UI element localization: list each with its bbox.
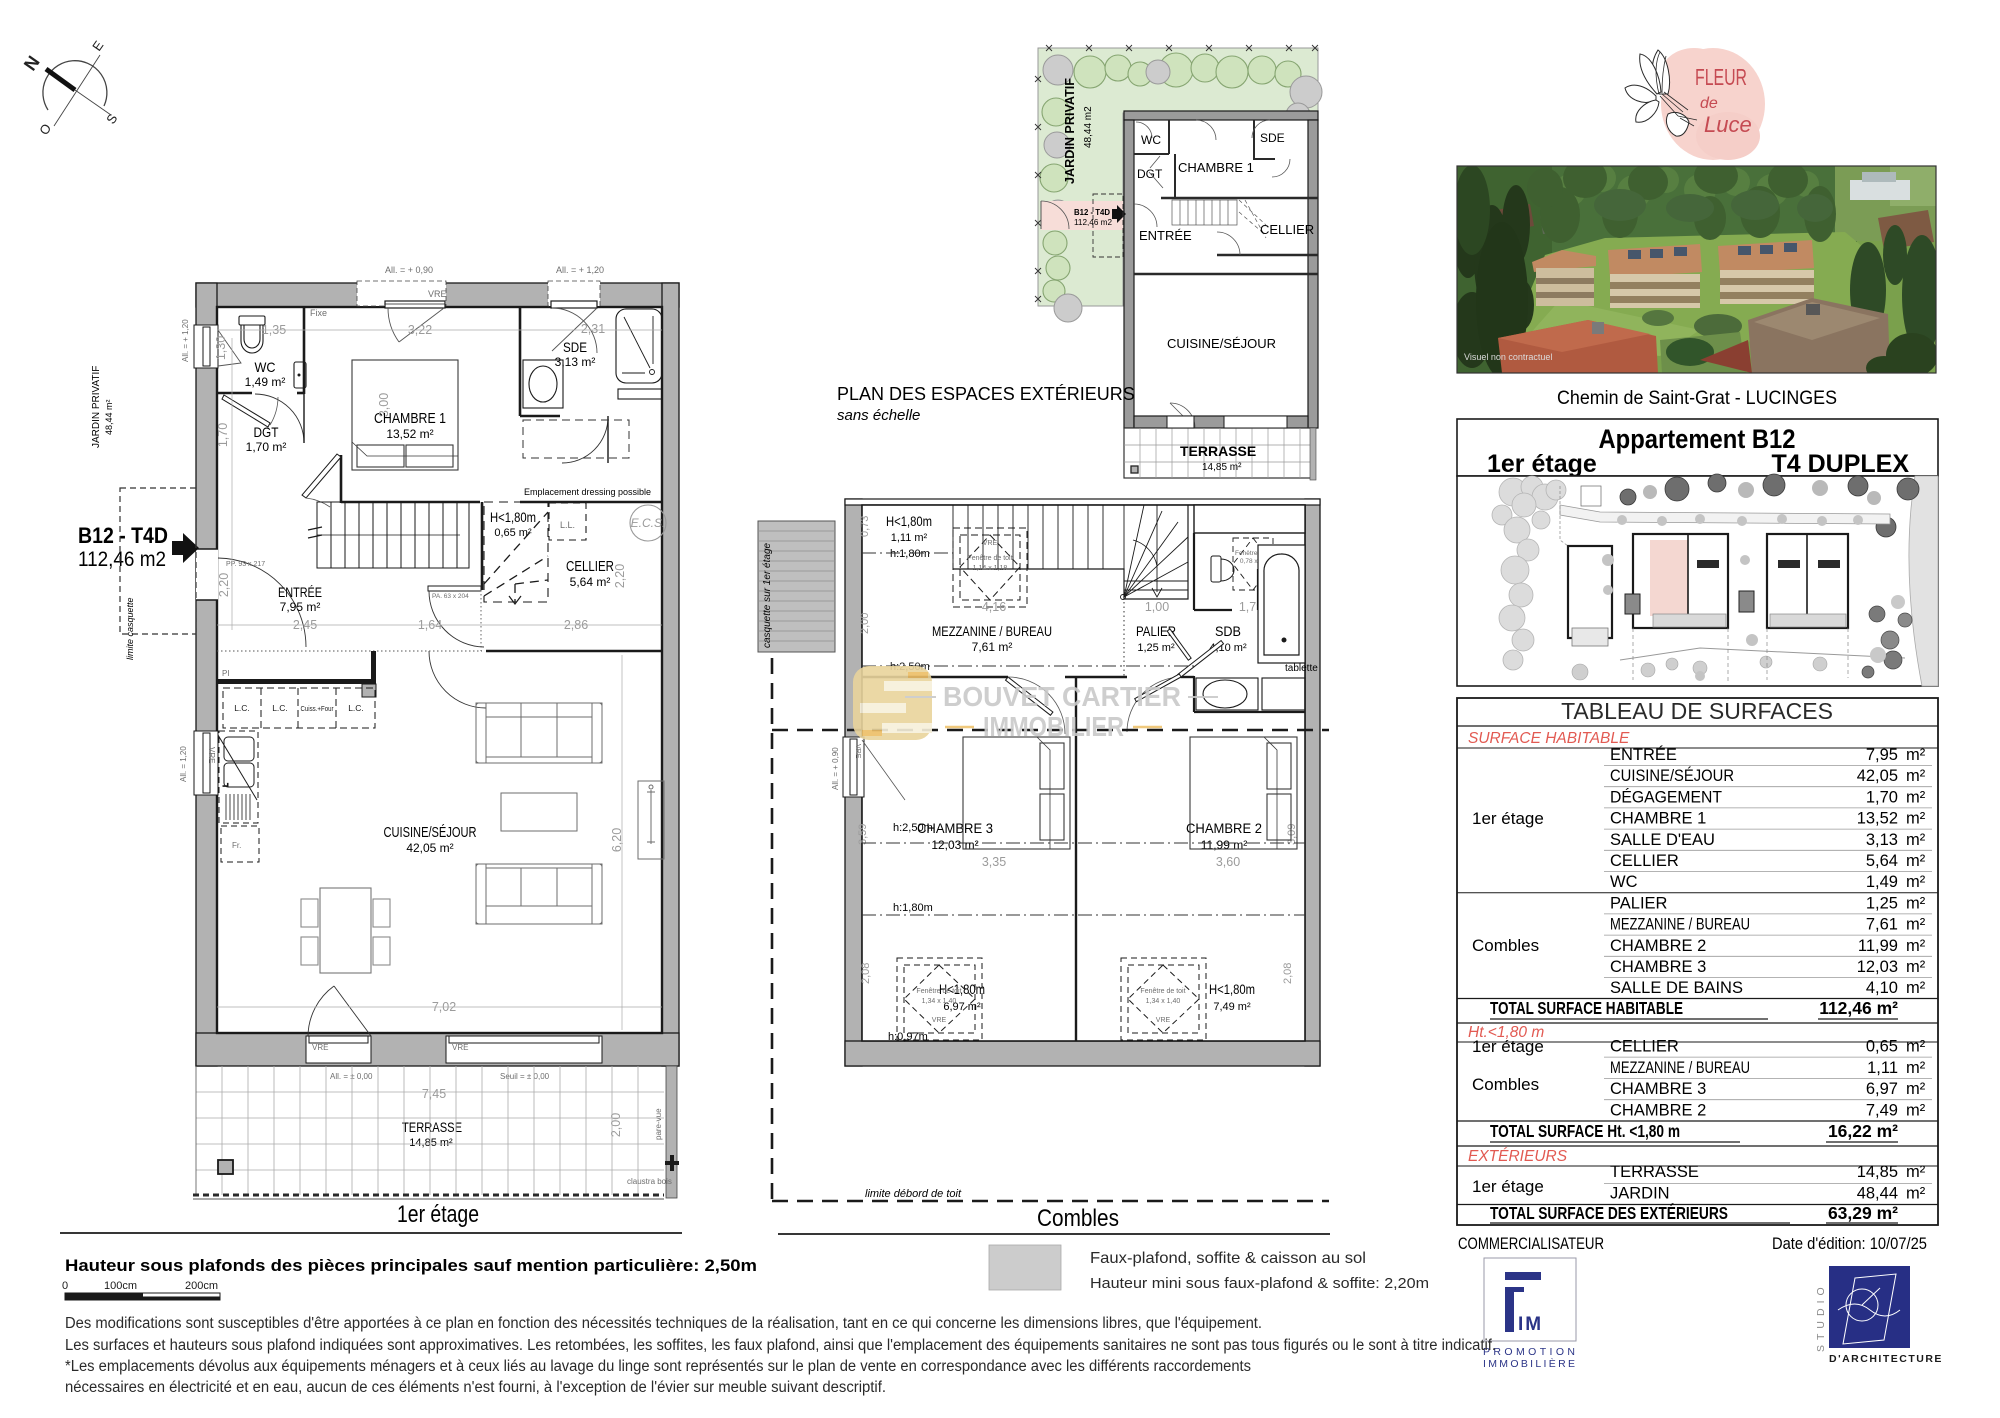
svg-text:DÉGAGEMENT: DÉGAGEMENT — [1610, 787, 1722, 806]
svg-text:Combles: Combles — [1037, 1205, 1119, 1232]
svg-text:h:1,80m: h:1,80m — [890, 548, 930, 560]
svg-text:Hauteur mini sous faux-plafond: Hauteur mini sous faux-plafond & soffite… — [1090, 1275, 1429, 1292]
svg-text:12,03: 12,03 — [1857, 958, 1898, 976]
svg-text:3,59: 3,59 — [857, 824, 869, 845]
svg-text:L.C.: L.C. — [234, 703, 250, 713]
svg-text:2,31: 2,31 — [581, 322, 605, 336]
svg-text:1,70 m²: 1,70 m² — [246, 440, 287, 454]
svg-text:CELLIER: CELLIER — [566, 558, 614, 575]
svg-text:TOTAL SURFACE Ht. <1,80 m: TOTAL SURFACE Ht. <1,80 m — [1490, 1121, 1680, 1141]
svg-text:claustra bois: claustra bois — [627, 1177, 672, 1186]
svg-text:CELLIER: CELLIER — [1610, 852, 1679, 870]
svg-text:5,64: 5,64 — [1866, 852, 1898, 870]
svg-text:CHAMBRE 1: CHAMBRE 1 — [1610, 810, 1706, 828]
svg-text:1er étage: 1er étage — [397, 1201, 479, 1228]
svg-text:H<1,80m: H<1,80m — [490, 510, 536, 525]
svg-text:limite casquette: limite casquette — [125, 597, 135, 660]
svg-text:m²: m² — [1906, 1185, 1926, 1203]
svg-text:CHAMBRE 3: CHAMBRE 3 — [1610, 958, 1706, 976]
svg-text:2,20: 2,20 — [217, 573, 231, 597]
svg-text:CUISINE/SÉJOUR: CUISINE/SÉJOUR — [1167, 336, 1276, 351]
svg-text:1,00: 1,00 — [1145, 600, 1169, 614]
svg-text:7,49 m²: 7,49 m² — [1213, 1001, 1251, 1013]
svg-text:7,61: 7,61 — [1866, 916, 1898, 934]
svg-text:SDE: SDE — [1260, 131, 1285, 145]
svg-text:1,11 m²: 1,11 m² — [891, 532, 928, 544]
svg-text:WC: WC — [1141, 133, 1161, 147]
svg-text:13,52: 13,52 — [1857, 810, 1898, 828]
svg-text:Appartement B12: Appartement B12 — [1599, 424, 1796, 454]
svg-text:DGT: DGT — [1137, 167, 1163, 181]
svg-text:FLEUR: FLEUR — [1695, 64, 1747, 90]
svg-text:D'ARCHITECTURE: D'ARCHITECTURE — [1829, 1353, 1943, 1365]
svg-text:CHAMBRE 1: CHAMBRE 1 — [1178, 160, 1254, 175]
svg-text:VRE: VRE — [428, 289, 447, 299]
svg-text:nécessaires en électricité et: nécessaires en électricité et en eau, au… — [65, 1379, 886, 1396]
svg-text:14,85 m²: 14,85 m² — [1202, 462, 1242, 473]
svg-text:1er étage: 1er étage — [1472, 1037, 1544, 1056]
svg-text:h:1,80m: h:1,80m — [893, 902, 933, 914]
svg-text:B12 - T4D: B12 - T4D — [78, 523, 168, 548]
svg-text:All. = + 1,20: All. = + 1,20 — [181, 319, 190, 362]
svg-text:Visuel non contractuel: Visuel non contractuel — [1464, 352, 1552, 362]
svg-text:VRE: VRE — [207, 747, 216, 763]
svg-text:m²: m² — [1906, 1102, 1926, 1120]
svg-text:T4 DUPLEX: T4 DUPLEX — [1771, 450, 1909, 478]
svg-text:SDB: SDB — [1215, 623, 1241, 639]
svg-text:Les surfaces et hauteurs sous: Les surfaces et hauteurs sous plafond in… — [65, 1337, 1496, 1354]
svg-text:sans échelle: sans échelle — [837, 407, 920, 424]
svg-text:Hauteur sous plafonds des pièc: Hauteur sous plafonds des pièces princip… — [65, 1256, 757, 1275]
svg-text:de: de — [1700, 95, 1718, 112]
svg-text:ENTRÉE: ENTRÉE — [278, 584, 322, 600]
svg-text:Cuiss.+Four: Cuiss.+Four — [301, 704, 334, 713]
svg-text:CUISINE/SÉJOUR: CUISINE/SÉJOUR — [384, 824, 477, 841]
svg-text:ENTRÉE: ENTRÉE — [1139, 228, 1192, 243]
svg-text:MEZZANINE / BUREAU: MEZZANINE / BUREAU — [1610, 1059, 1750, 1077]
svg-text:2,00: 2,00 — [609, 1113, 623, 1137]
svg-text:1,25 m²: 1,25 m² — [1137, 642, 1175, 654]
svg-text:casquette sur 1er étage: casquette sur 1er étage — [762, 542, 773, 648]
svg-text:7,45: 7,45 — [422, 1087, 446, 1101]
svg-text:VRE: VRE — [932, 1017, 947, 1024]
svg-text:2,00: 2,00 — [859, 613, 871, 634]
svg-text:Fenêtre de toit: Fenêtre de toit — [916, 988, 961, 995]
svg-text:3,13 m²: 3,13 m² — [555, 355, 596, 369]
svg-text:VRE: VRE — [983, 540, 998, 547]
svg-text:m²: m² — [1906, 1080, 1926, 1098]
svg-text:m²: m² — [1906, 1059, 1926, 1077]
svg-text:1,11: 1,11 — [1867, 1059, 1898, 1077]
svg-text:H<1,80m: H<1,80m — [886, 514, 932, 529]
svg-text:B12 - T4D: B12 - T4D — [1074, 207, 1110, 217]
svg-text:m²: m² — [1906, 767, 1926, 785]
svg-text:TABLEAU DE SURFACES: TABLEAU DE SURFACES — [1561, 698, 1833, 724]
svg-text:Seuil = ± 0,00: Seuil = ± 0,00 — [500, 1072, 550, 1081]
svg-text:CHAMBRE 2: CHAMBRE 2 — [1610, 937, 1706, 955]
svg-text:WC: WC — [1610, 873, 1638, 891]
svg-text:Chemin de Saint-Grat - LUCINGE: Chemin de Saint-Grat - LUCINGES — [1557, 388, 1837, 409]
svg-text:*Les emplacements dévolus aux: *Les emplacements dévolus aux équipement… — [65, 1358, 1251, 1375]
svg-text:14,85 m²: 14,85 m² — [409, 1137, 453, 1149]
svg-text:JARDIN PRIVATIF: JARDIN PRIVATIF — [1062, 78, 1077, 184]
svg-text:Combles: Combles — [1472, 1075, 1539, 1094]
svg-text:3,35: 3,35 — [982, 855, 1006, 869]
svg-text:Combles: Combles — [1472, 936, 1539, 955]
svg-text:1er étage: 1er étage — [1472, 809, 1544, 828]
svg-text:m²: m² — [1906, 979, 1926, 997]
svg-text:VRE: VRE — [452, 1043, 468, 1052]
svg-text:MEZZANINE / BUREAU: MEZZANINE / BUREAU — [932, 623, 1052, 639]
svg-text:IM: IM — [1518, 1314, 1543, 1335]
svg-text:Date d'édition: 10/07/25: Date d'édition: 10/07/25 — [1772, 1234, 1927, 1253]
svg-text:1,49 m²: 1,49 m² — [245, 375, 286, 389]
svg-text:MEZZANINE / BUREAU: MEZZANINE / BUREAU — [1610, 916, 1750, 934]
svg-text:63,29 m²: 63,29 m² — [1828, 1203, 1898, 1223]
svg-text:Fenêtre de toit: Fenêtre de toit — [967, 555, 1012, 562]
svg-text:14,85: 14,85 — [1857, 1163, 1898, 1181]
svg-text:3,09: 3,09 — [1286, 824, 1298, 845]
svg-text:m²: m² — [1906, 746, 1926, 764]
svg-text:VRE: VRE — [312, 1043, 328, 1052]
svg-text:IMMOBILIER: IMMOBILIER — [983, 711, 1124, 742]
svg-text:TOTAL SURFACE DES EXTÉRIEURS: TOTAL SURFACE DES EXTÉRIEURS — [1490, 1202, 1728, 1223]
svg-text:3,00: 3,00 — [377, 393, 391, 417]
svg-text:11,99 m²: 11,99 m² — [1201, 838, 1247, 852]
svg-text:m²: m² — [1906, 788, 1926, 806]
svg-text:Faux-plafond, soffite & caisso: Faux-plafond, soffite & caisson au sol — [1090, 1250, 1366, 1267]
svg-text:112,46 m2: 112,46 m2 — [78, 548, 166, 571]
svg-text:All. = + 0,90: All. = + 0,90 — [385, 265, 433, 275]
svg-text:42,05: 42,05 — [1857, 767, 1898, 785]
svg-text:7,95 m²: 7,95 m² — [280, 600, 321, 614]
svg-text:All. = + 0,90: All. = + 0,90 — [831, 747, 840, 790]
svg-text:COMMERCIALISATEUR: COMMERCIALISATEUR — [1458, 1234, 1604, 1253]
svg-text:TERRASSE: TERRASSE — [1610, 1163, 1699, 1181]
svg-text:Des modifications sont suscept: Des modifications sont susceptibles d'êt… — [65, 1315, 1262, 1332]
svg-text:48,44: 48,44 — [1857, 1185, 1898, 1203]
svg-text:42,05 m²: 42,05 m² — [406, 841, 453, 855]
svg-text:BOUVET CARTIER: BOUVET CARTIER — [943, 681, 1181, 712]
svg-text:16,22 m²: 16,22 m² — [1828, 1121, 1898, 1141]
svg-text:m²: m² — [1906, 810, 1926, 828]
svg-text:7,95: 7,95 — [1866, 746, 1898, 764]
svg-text:11,99: 11,99 — [1858, 937, 1898, 955]
svg-text:48,44 m²: 48,44 m² — [104, 399, 114, 435]
svg-text:CHAMBRE 2: CHAMBRE 2 — [1186, 820, 1262, 836]
svg-text:All. = ± 0,00: All. = ± 0,00 — [330, 1072, 373, 1081]
svg-text:Fenêtre de toit: Fenêtre de toit — [1140, 988, 1185, 995]
svg-text:m²: m² — [1906, 894, 1926, 912]
svg-text:112,46 m²: 112,46 m² — [1819, 998, 1898, 1018]
svg-text:4,16: 4,16 — [982, 600, 1006, 614]
svg-text:TERRASSE: TERRASSE — [402, 1119, 462, 1135]
svg-text:All. = 1,20: All. = 1,20 — [179, 746, 188, 782]
svg-text:m²: m² — [1906, 873, 1926, 891]
svg-text:JARDIN PRIVATIF: JARDIN PRIVATIF — [91, 366, 102, 448]
svg-text:1,34 x 1,40: 1,34 x 1,40 — [1146, 998, 1181, 1005]
svg-text:3,13: 3,13 — [1866, 831, 1898, 849]
svg-text:200cm: 200cm — [185, 1280, 218, 1292]
svg-text:SDE: SDE — [563, 339, 587, 355]
svg-text:Luce: Luce — [1704, 112, 1752, 137]
svg-text:PI: PI — [222, 669, 230, 678]
svg-text:CELLIER: CELLIER — [1260, 222, 1314, 237]
svg-text:0: 0 — [62, 1280, 68, 1292]
svg-text:m²: m² — [1906, 852, 1926, 870]
svg-text:H<1,80m: H<1,80m — [1209, 982, 1255, 997]
svg-text:Fixe: Fixe — [310, 308, 327, 318]
svg-text:1,25: 1,25 — [1866, 894, 1898, 912]
svg-text:7,61 m²: 7,61 m² — [972, 640, 1013, 654]
svg-text:limite débord de toit: limite débord de toit — [865, 1188, 962, 1200]
svg-text:m²: m² — [1906, 831, 1926, 849]
svg-text:1,49: 1,49 — [1866, 873, 1898, 891]
svg-text:12,03 m²: 12,03 m² — [931, 838, 978, 852]
svg-text:0,73: 0,73 — [859, 516, 871, 537]
svg-text:EXTÉRIEURS: EXTÉRIEURS — [1468, 1148, 1568, 1165]
svg-text:0,65 m²: 0,65 m² — [494, 527, 532, 539]
svg-text:1,34 x 1,40: 1,34 x 1,40 — [922, 998, 957, 1005]
svg-text:2,08: 2,08 — [860, 963, 872, 984]
svg-text:5,64 m²: 5,64 m² — [570, 575, 611, 589]
svg-text:m²: m² — [1906, 1163, 1926, 1181]
svg-text:1,70: 1,70 — [216, 423, 230, 447]
svg-text:1,14 x 1,18: 1,14 x 1,18 — [973, 565, 1008, 572]
svg-text:m²: m² — [1906, 1038, 1926, 1056]
svg-text:PALIER: PALIER — [1610, 894, 1668, 912]
svg-text:DGT: DGT — [254, 424, 279, 440]
svg-text:All. = + 1,20: All. = + 1,20 — [556, 265, 604, 275]
svg-text:JARDIN: JARDIN — [1610, 1185, 1670, 1203]
svg-text:Fr.: Fr. — [232, 841, 241, 850]
svg-text:4,10: 4,10 — [1866, 979, 1898, 997]
svg-text:Emplacement dressing possible: Emplacement dressing possible — [524, 487, 651, 497]
svg-text:2,20: 2,20 — [613, 564, 627, 588]
svg-text:tablette: tablette — [1285, 663, 1318, 674]
svg-text:STUDIO: STUDIO — [1815, 1282, 1827, 1352]
svg-text:CHAMBRE 3: CHAMBRE 3 — [1610, 1080, 1706, 1098]
svg-text:h:0,97m: h:0,97m — [888, 1031, 928, 1043]
svg-text:m²: m² — [1906, 937, 1926, 955]
svg-text:CUISINE/SÉJOUR: CUISINE/SÉJOUR — [1610, 766, 1734, 785]
svg-text:PA. 63 x 204: PA. 63 x 204 — [432, 593, 469, 600]
svg-text:0,65: 0,65 — [1866, 1038, 1898, 1056]
svg-text:TERRASSE: TERRASSE — [1180, 443, 1256, 459]
svg-text:E.C.S.: E.C.S. — [631, 516, 666, 530]
svg-text:ENTRÉE: ENTRÉE — [1610, 745, 1677, 764]
svg-text:PLAN DES ESPACES EXTÉRIEURS: PLAN DES ESPACES EXTÉRIEURS — [837, 384, 1135, 404]
svg-text:L.C.: L.C. — [348, 703, 364, 713]
svg-text:L.C.: L.C. — [272, 703, 288, 713]
svg-text:48,44 m2: 48,44 m2 — [1083, 106, 1094, 148]
svg-text:13,52 m²: 13,52 m² — [386, 427, 433, 441]
svg-text:VRE: VRE — [854, 744, 861, 759]
svg-text:SALLE D'EAU: SALLE D'EAU — [1610, 831, 1715, 849]
svg-text:100cm: 100cm — [104, 1280, 137, 1292]
svg-text:WC: WC — [255, 359, 276, 375]
svg-text:CELLIER: CELLIER — [1610, 1038, 1679, 1056]
svg-text:SURFACE HABITABLE: SURFACE HABITABLE — [1468, 730, 1630, 747]
svg-text:pare-vue: pare-vue — [654, 1108, 663, 1140]
svg-text:1,30: 1,30 — [214, 336, 228, 360]
svg-text:L: L — [223, 783, 230, 787]
svg-text:VRE: VRE — [1156, 1017, 1171, 1024]
svg-text:m²: m² — [1906, 916, 1926, 934]
svg-text:3,60: 3,60 — [1216, 855, 1240, 869]
svg-text:6,97: 6,97 — [1866, 1080, 1898, 1098]
svg-text:2,08: 2,08 — [1282, 963, 1294, 984]
svg-text:CHAMBRE 2: CHAMBRE 2 — [1610, 1102, 1706, 1120]
svg-text:7,49: 7,49 — [1866, 1102, 1898, 1120]
svg-text:m²: m² — [1906, 958, 1926, 976]
svg-text:L.L.: L.L. — [560, 520, 575, 530]
svg-text:TOTAL SURFACE HABITABLE: TOTAL SURFACE HABITABLE — [1490, 998, 1683, 1018]
svg-text:SALLE DE BAINS: SALLE DE BAINS — [1610, 979, 1743, 997]
svg-text:h:2,50m: h:2,50m — [893, 822, 933, 834]
svg-text:PROMOTION: PROMOTION — [1483, 1346, 1575, 1358]
svg-text:1er étage: 1er étage — [1472, 1177, 1544, 1196]
svg-text:1er étage: 1er étage — [1487, 450, 1597, 478]
svg-text:1,70: 1,70 — [1866, 788, 1898, 806]
